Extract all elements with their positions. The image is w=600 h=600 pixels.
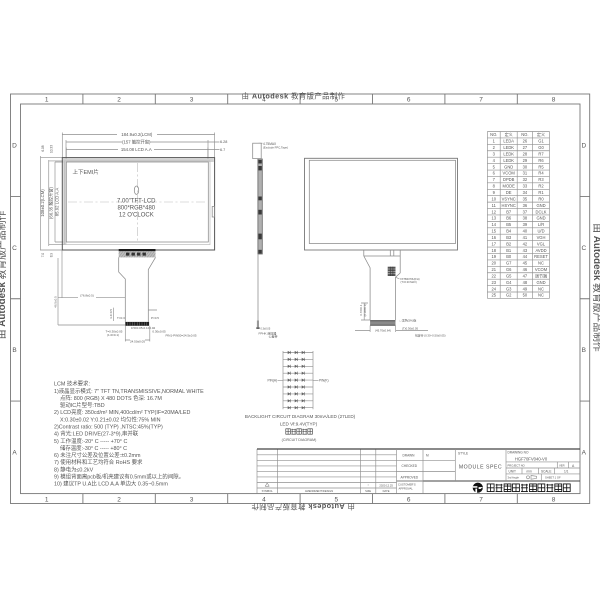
svg-text:(1.0±0.1): (1.0±0.1) [107,333,119,337]
svg-text:R4: R4 [538,171,544,176]
svg-text:LEDK: LEDK [503,151,514,156]
svg-text:R0: R0 [538,196,544,201]
svg-text:9) 模组背面离pcb板/机壳建议有0.5mm或以上的间隙。: 9) 模组背面离pcb板/机壳建议有0.5mm或以上的间隙。 [54,473,184,481]
svg-text:MODE: MODE [503,184,516,189]
svg-text:PIN1-PIN50=24.5±0.05: PIN1-PIN50=24.5±0.05 [165,334,196,338]
svg-text:1: 1 [45,496,49,503]
svg-text:2)Contrast ratio: 500 (TYP) ,N: 2)Contrast ratio: 500 (TYP) ,NTSC:45%(TY… [54,425,163,431]
svg-text:1)液晶显示模式: 7" TFT TN,TRANSMISSI: 1)液晶显示模式: 7" TFT TN,TRANSMISSIVE,NORMAL … [54,387,204,395]
svg-text:AVDD: AVDD [535,248,546,253]
svg-text:驱动IC片型号:TBD: 驱动IC片型号:TBD [60,401,105,409]
svg-text:24.50±0.05: 24.50±0.05 [130,340,145,344]
svg-text:36: 36 [523,203,528,208]
svg-text:GND: GND [536,203,545,208]
svg-text:VSYNC: VSYNC [502,196,516,201]
svg-text:RESET: RESET [534,254,548,259]
svg-text:(T=0.30 MAX): (T=0.30 MAX) [401,280,417,284]
svg-text:7) 使用材料和工艺均符合 RoHS 要求: 7) 使用材料和工艺均符合 RoHS 要求 [54,458,143,466]
svg-text:G7: G7 [506,261,512,266]
svg-text:D: D [581,142,586,149]
svg-text:mm: mm [527,469,533,473]
svg-text:6: 6 [407,97,411,104]
svg-text:43: 43 [523,248,528,253]
svg-text:C: C [581,245,586,252]
svg-text:NO.: NO. [490,132,497,137]
svg-text:3rd Angle: 3rd Angle [508,476,520,480]
svg-text:31: 31 [523,171,528,176]
svg-text:MODULE SPEC: MODULE SPEC [459,465,502,471]
svg-text:21: 21 [492,267,497,272]
svg-text:CUSTOMER'S: CUSTOMER'S [398,483,416,487]
svg-text:L/R: L/R [538,222,544,227]
svg-text:包容带 (0.30~0.50±0.05): 包容带 (0.30~0.50±0.05) [415,334,446,338]
svg-text:33: 33 [523,184,528,189]
svg-text:184.9±0.2(LCM): 184.9±0.2(LCM) [121,132,153,137]
svg-text:G5: G5 [506,273,512,278]
svg-text:□ 黑色(5%)版: □ 黑色(5%)版 [400,319,417,323]
svg-text:APPROVAL: APPROVAL [399,487,414,491]
svg-text:G1: G1 [538,139,544,144]
svg-text:154.08 LCD A.A: 154.08 LCD A.A [121,147,152,152]
svg-text:G2: G2 [506,293,512,298]
svg-text:48: 48 [523,280,528,285]
svg-text:PIN(K): PIN(K) [319,379,329,383]
svg-text:D: D [12,142,17,149]
svg-text:DRAWN: DRAWN [403,453,416,457]
svg-text:108±0.2(LCM): 108±0.2(LCM) [40,189,45,217]
svg-text:储存温度:-30° C ----- +80° C: 储存温度:-30° C ----- +80° C [60,444,127,452]
svg-text:LEDA: LEDA [503,139,514,144]
svg-text:25: 25 [492,293,497,298]
svg-text:NC: NC [538,293,544,298]
svg-text:DE: DE [506,190,512,195]
svg-text:50: 50 [523,293,528,298]
svg-text:定义: 定义 [537,131,545,137]
svg-text:R5: R5 [538,164,544,169]
svg-text:R3: R3 [538,177,544,182]
svg-text:(45.70±0.64): (45.70±0.64) [375,329,391,333]
svg-text:800*RGB*480: 800*RGB*480 [117,206,155,212]
svg-text:B6: B6 [506,216,512,221]
svg-text:14: 14 [492,222,497,227]
svg-text:STYLE: STYLE [458,452,468,456]
svg-text:点阵: 800 (RGB) X 480 DOTS 色深: 1: 点阵: 800 (RGB) X 480 DOTS 色深: 16.7M [60,394,162,402]
svg-text:上下EMI片: 上下EMI片 [73,168,99,176]
svg-text:DATE: DATE [383,489,390,493]
svg-text:6.7: 6.7 [220,148,225,152]
svg-text:85.92 LCD A.A: 85.92 LCD A.A [55,188,60,217]
svg-text:PROJECT NO: PROJECT NO [508,463,525,467]
svg-text:42: 42 [523,241,528,246]
svg-text:49: 49 [523,286,528,291]
svg-text:30: 30 [523,164,528,169]
svg-text:7: 7 [479,97,483,104]
svg-text:16: 16 [492,235,497,240]
svg-text:LEDK: LEDK [503,145,514,150]
svg-text:HGF70FV040-V0: HGF70FV040-V0 [515,456,548,461]
svg-text:46.5±0.5: 46.5±0.5 [54,296,58,308]
svg-text:(CIRCUIT DIAGRAM): (CIRCUIT DIAGRAM) [282,438,317,442]
svg-text:VER: VER [559,463,565,467]
svg-text:2020.12.25: 2020.12.25 [379,484,393,488]
svg-text:13: 13 [492,216,497,221]
svg-text:10) 建议TP U.A比 LCD A.A 单边大 0.35: 10) 建议TP U.A比 LCD A.A 单边大 0.35~0.5mm [54,480,168,488]
svg-text:27: 27 [523,145,528,150]
svg-text:R6: R6 [538,158,544,163]
svg-text:B7: B7 [506,209,512,214]
svg-text:NC: NC [538,286,544,291]
svg-text:C: C [12,245,17,252]
svg-text:41: 41 [523,235,528,240]
svg-text:SHEET 1 OF: SHEET 1 OF [545,476,561,480]
svg-text:B3: B3 [506,235,512,240]
svg-text:调节端: 调节端 [535,272,547,278]
svg-text:6: 6 [407,496,411,503]
svg-text:29: 29 [523,158,528,163]
svg-text:BACKLIGHT CIRCUIT DIAGRAM 30m: BACKLIGHT CIRCUIT DIAGRAM 30mA/LED (27LE… [245,414,356,419]
svg-text:由 Autodesk 教育版产品制作: 由 Autodesk 教育版产品制作 [242,91,346,100]
svg-text:38: 38 [523,216,528,221]
svg-text:(157 触控开窗): (157 触控开窗) [122,139,151,146]
svg-text:8: 8 [552,97,556,104]
svg-text:4.4±0.5: 4.4±0.5 [109,309,113,319]
svg-text:B2: B2 [506,241,512,246]
svg-text:NO.: NO. [521,132,528,137]
svg-text:B5: B5 [506,222,512,227]
svg-text:DRAWING NO: DRAWING NO [508,450,529,454]
svg-text:7: 7 [479,496,483,503]
svg-text:VCOM: VCOM [535,267,548,272]
svg-text:1: 1 [45,97,49,104]
svg-text:2: 2 [117,496,121,503]
svg-text:G3: G3 [506,286,512,291]
svg-text:VGL: VGL [537,241,546,246]
svg-text:8.9: 8.9 [49,253,53,258]
svg-text:7.0: 7.0 [41,253,45,258]
svg-text:2: 2 [117,97,121,104]
svg-text:20: 20 [492,261,497,266]
svg-text:17: 17 [492,241,497,246]
svg-text:6) 未注尺寸公差及位置公差:±0.2mm: 6) 未注尺寸公差及位置公差:±0.2mm [54,451,141,459]
svg-text:APPROVED: APPROVED [401,475,419,479]
svg-text:45: 45 [523,261,528,266]
svg-text:G0: G0 [538,145,544,150]
svg-text:24: 24 [492,286,497,291]
svg-text:6.08: 6.08 [41,145,45,151]
svg-text:6.28: 6.28 [220,140,227,144]
svg-text:B: B [582,347,586,354]
svg-text:8) 静电为≤0.2kV: 8) 静电为≤0.2kV [54,465,94,473]
svg-text:GND: GND [536,280,545,285]
svg-text:DPDB: DPDB [503,177,515,182]
svg-text:A: A [582,450,587,457]
svg-text:CHECKED: CHECKED [402,464,418,468]
svg-text:SCALE: SCALE [541,469,551,473]
svg-text:47: 47 [523,273,528,278]
svg-text:由 Autodesk 教育版产品制作: 由 Autodesk 教育版产品制作 [251,502,355,511]
svg-text:3: 3 [190,496,194,503]
svg-text:26: 26 [523,139,528,144]
svg-text:11: 11 [492,203,497,208]
svg-text:AMENDMENT/DESIGN: AMENDMENT/DESIGN [305,489,333,493]
svg-text:3: 3 [190,97,194,104]
svg-text:5) 工作温度:-20° C ----- +70° C: 5) 工作温度:-20° C ----- +70° C [54,437,127,445]
svg-text:VGH: VGH [537,235,546,240]
svg-text:10.33: 10.33 [49,145,53,153]
svg-text:(66.35 触控开窗): (66.35 触控开窗) [47,186,54,219]
svg-text:4) 背光:LED DRIVE(27-3*9),串并联: 4) 背光:LED DRIVE(27-3*9),串并联 [54,430,139,438]
svg-text:VCOM: VCOM [503,171,516,176]
svg-text:LED Vf:9.4V(TYP): LED Vf:9.4V(TYP) [280,422,318,427]
svg-text:19: 19 [492,254,497,259]
svg-text:G4: G4 [506,280,512,285]
svg-text:(76.8±0.5): (76.8±0.5) [80,294,94,298]
svg-text:A: A [12,450,17,457]
svg-text:定义: 定义 [505,131,513,137]
svg-text:(6.36±0.1): (6.36±0.1) [363,304,367,317]
svg-text:由 Autodesk 教育版产品制作: 由 Autodesk 教育版产品制作 [0,211,8,340]
svg-text:15: 15 [492,229,497,234]
svg-text:40: 40 [523,229,528,234]
svg-text:32: 32 [523,177,528,182]
svg-text:28: 28 [523,151,528,156]
svg-text:R2: R2 [538,184,544,189]
svg-text:R7: R7 [538,151,544,156]
svg-text:2) LCD亮度: 350cd/m² MIN,400cd/m: 2) LCD亮度: 350cd/m² MIN,400cd/m² TYP(IF=2… [54,408,190,416]
svg-text:12 O'CLOCK: 12 O'CLOCK [119,213,154,219]
svg-text:39: 39 [523,222,528,227]
svg-text:34: 34 [523,190,528,195]
svg-text:8: 8 [552,496,556,503]
svg-text:B4: B4 [506,229,512,234]
svg-text:1/1: 1/1 [564,469,569,473]
svg-text:18: 18 [492,248,497,253]
svg-text:U/D: U/D [537,229,544,234]
svg-text:0.3±0.05: 0.3±0.05 [261,328,271,331]
svg-text:LCM 技术要求:: LCM 技术要求: [54,380,90,388]
svg-text:GND: GND [536,216,545,221]
svg-text:T=0.3: T=0.3 [117,316,125,320]
svg-text:GND: GND [504,164,513,169]
svg-text:DCLK: DCLK [536,209,547,214]
svg-text:M: M [426,453,429,457]
svg-text:B1: B1 [506,248,512,253]
svg-text:G6: G6 [506,267,512,272]
svg-text:7.00"TFT-LCD: 7.00"TFT-LCD [117,199,156,205]
svg-text:44: 44 [523,254,528,259]
svg-text:*: * [368,484,369,488]
svg-text:23: 23 [492,280,497,285]
svg-text:PIN(A): PIN(A) [267,379,277,383]
svg-text:NC: NC [538,261,544,266]
svg-text:LEDK: LEDK [503,158,514,163]
svg-text:B: B [12,347,16,354]
svg-text:46: 46 [523,267,528,272]
svg-text:公差带: 公差带 [269,333,278,338]
svg-text:(Exclude FPC,Tape): (Exclude FPC,Tape) [263,145,288,149]
svg-text:HSYNC: HSYNC [502,203,516,208]
svg-text:37: 37 [523,209,528,214]
svg-text:由 Autodesk 教育版产品制作: 由 Autodesk 教育版产品制作 [591,223,600,352]
svg-text:R1: R1 [538,190,544,195]
svg-text:(T)0.30±0.05: (T)0.30±0.05 [402,327,418,331]
svg-text:P=0.5: P=0.5 [151,316,159,320]
svg-text:SYMBOL: SYMBOL [262,489,274,493]
svg-text:X:0.30±0.02 Y:0.21±0.02 均: X:0.30±0.02 Y:0.21±0.02 均匀性:75% MIN [60,415,161,423]
svg-text:UNIT: UNIT [509,469,516,473]
svg-text:SIZE: SIZE [365,489,371,493]
svg-text:10: 10 [492,196,497,201]
svg-text:22: 22 [492,273,497,278]
svg-text:0.30±0.05: 0.30±0.05 [152,330,166,334]
svg-text:12: 12 [492,209,497,214]
svg-text:35: 35 [523,196,528,201]
svg-text:B0: B0 [506,254,512,259]
